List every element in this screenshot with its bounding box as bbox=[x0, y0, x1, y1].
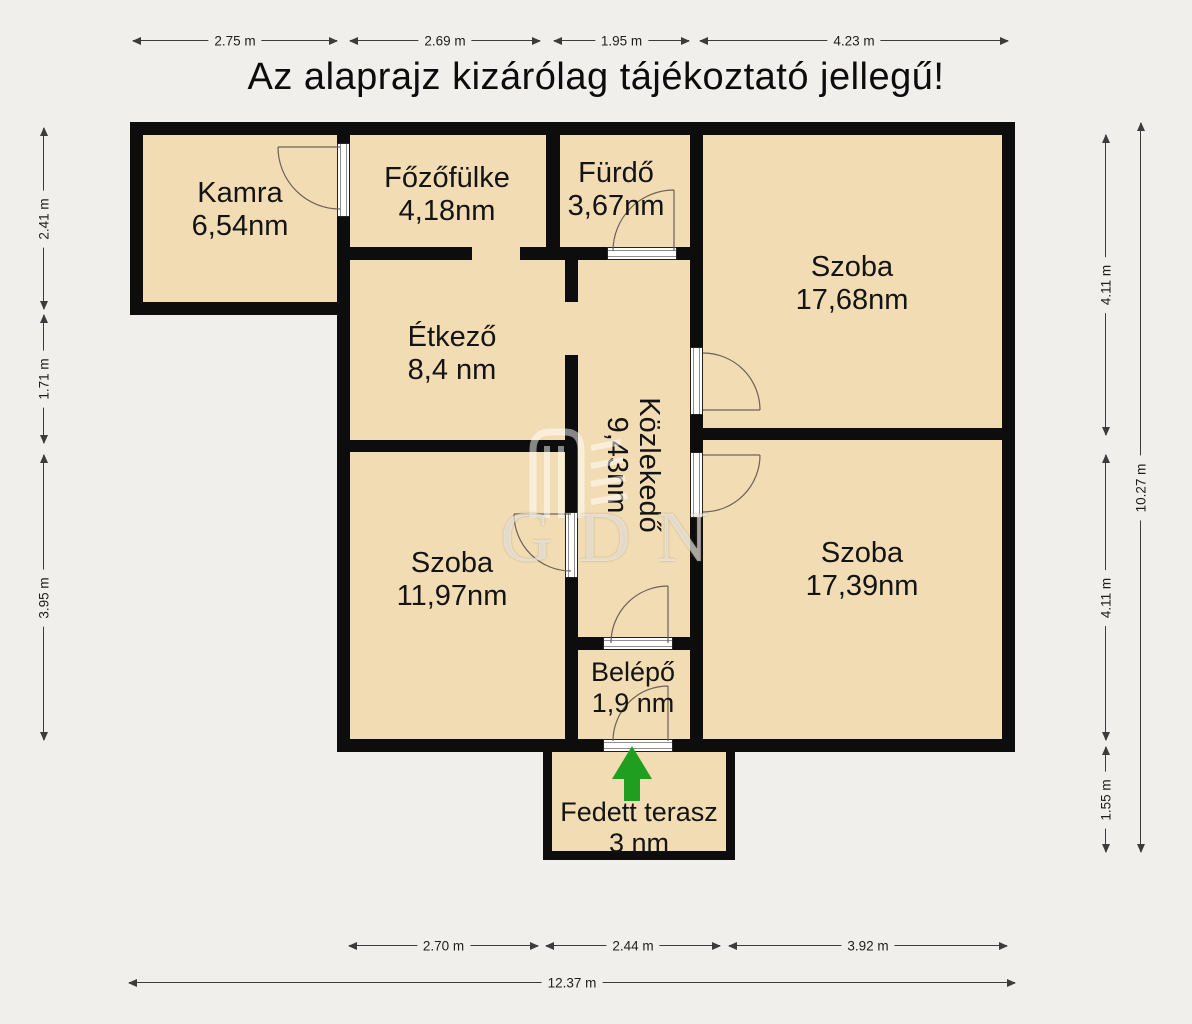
room-label-szoba-nagy: Szoba 17,68nm bbox=[796, 251, 909, 317]
room-label-kamra: Kamra 6,54nm bbox=[192, 177, 289, 243]
door-arc-belepo-top bbox=[611, 586, 668, 643]
room-area: 6,54nm bbox=[192, 210, 289, 243]
watermark-text: GDN bbox=[495, 496, 740, 579]
room-name: Főzőfülke bbox=[384, 162, 510, 195]
room-label-szoba-bal: Szoba 11,97nm bbox=[397, 547, 508, 613]
room-area: 11,97nm bbox=[397, 580, 508, 613]
entrance-arrow-icon bbox=[612, 746, 652, 801]
room-label-szoba-jobb: Szoba 17,39nm bbox=[806, 537, 919, 603]
room-name: Szoba bbox=[806, 537, 919, 570]
room-name: Fürdő bbox=[568, 157, 665, 190]
room-label-furdo: Fürdő 3,67nm bbox=[568, 157, 665, 223]
room-name: Szoba bbox=[397, 547, 508, 580]
door-arc-szoba-nagy bbox=[703, 353, 760, 410]
room-label-fozofulke: Főzőfülke 4,18nm bbox=[384, 162, 510, 228]
room-area: 8,4 nm bbox=[408, 354, 497, 387]
room-name: Szoba bbox=[796, 251, 909, 284]
room-area: 17,68nm bbox=[796, 284, 909, 317]
room-area: 3 nm bbox=[560, 828, 718, 859]
room-area: 1,9 nm bbox=[591, 688, 675, 719]
room-area: 4,18nm bbox=[384, 195, 510, 228]
room-name: Belépő bbox=[591, 657, 675, 688]
room-label-belepo: Belépő 1,9 nm bbox=[591, 657, 675, 719]
room-label-terasz: Fedett terasz 3 nm bbox=[560, 797, 718, 859]
room-area: 17,39nm bbox=[806, 570, 919, 603]
room-name: Fedett terasz bbox=[560, 797, 718, 828]
room-name: Étkező bbox=[408, 321, 497, 354]
floor-plan: Az alaprajz kizárólag tájékoztató jelleg… bbox=[0, 0, 1192, 1024]
room-label-etkezo: Étkező 8,4 nm bbox=[408, 321, 497, 387]
room-area: 3,67nm bbox=[568, 190, 665, 223]
room-name: Kamra bbox=[192, 177, 289, 210]
